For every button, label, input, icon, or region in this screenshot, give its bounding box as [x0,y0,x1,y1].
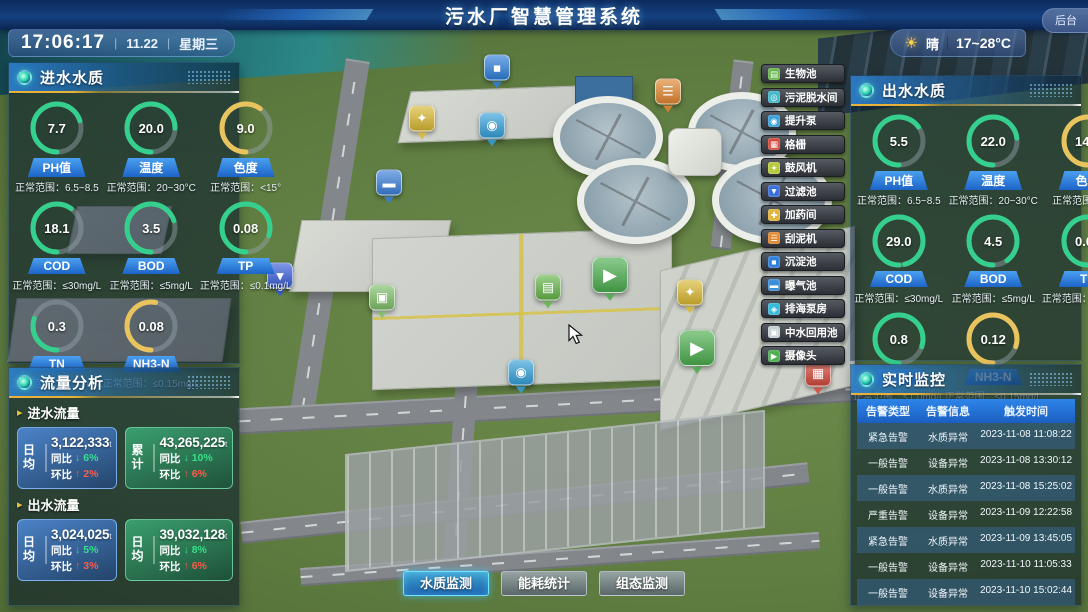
facility-type-icon: ☰ [768,232,780,244]
facility-label: 排海泵房 [785,301,827,316]
alarm-type: 紧急告警 [859,533,917,548]
up-arrow-icon: ↑ [75,560,80,572]
weekday-label: 星期三 [179,34,218,53]
alarm-row[interactable]: 严重告警 设备异常 2023-11-09 12:22:58 [857,501,1075,527]
facility-marker-icon: ☰ [655,79,681,105]
gauge-label: PH值 [870,171,928,190]
alarm-row[interactable]: 一般告警 设备异常 2023-11-10 11:05:33 [857,553,1075,579]
gauge-label: BOD [122,258,180,274]
facility-label: 生物池 [785,66,817,81]
facility-marker[interactable]: ◉ [508,360,534,399]
weather-label: 晴 [926,34,939,53]
facility-type-icon: ◈ [768,303,780,315]
alarm-type: 紧急告警 [859,429,917,444]
yoy-percent: 10% [192,452,213,464]
gauge-label: 色度 [1059,171,1088,190]
alarm-time: 2023-11-08 15:25:02 [979,481,1073,496]
header-wing-right [715,9,872,20]
marker-pointer-icon [487,140,497,152]
column-alarm-type: 告警类型 [859,403,917,419]
facility-type-icon: ◎ [768,91,780,103]
facility-type-icon: ▶ [768,350,780,362]
mom-percent: 2% [83,468,98,480]
alarm-time: 2023-11-10 11:05:33 [979,559,1073,574]
bottom-nav-button[interactable]: 能耗统计 [501,571,587,596]
gauge-label: COD [28,258,86,274]
gauge-ring: 22.0 [964,112,1022,170]
water-quality-gauge: 5.5 PH值 正常范围：6.5~8.5 [853,112,945,207]
facility-marker[interactable]: ▤ [535,275,561,314]
gauge-value: 9.0 [217,99,275,157]
gauge-label: 温度 [964,171,1022,190]
panel-header-decoration [187,70,231,84]
down-arrow-icon: ↓ [75,452,80,464]
panel-header-icon [17,375,32,390]
inlet-quality-panel: 进水水质 7.7 PH值 正常范围：6.5~8.5 [8,62,240,364]
facility-label: 曝气池 [785,278,817,293]
gauge-label: TP [217,258,275,274]
gauge-normal-range: 正常范围：≤30mg/L [853,290,945,305]
bottom-nav-button[interactable]: 水质监测 [403,571,489,596]
outlet-flow-section-label: ▸ 出水流量 [17,495,231,514]
gauge-value: 7.7 [28,99,86,157]
alarm-time: 2023-11-08 13:30:12 [979,455,1073,470]
panel-header-decoration [1029,83,1073,97]
water-quality-gauge: 0.08 TP 正常范围：≤0.1mg/L [200,199,292,292]
facility-marker[interactable]: ✦ [409,106,435,145]
page-title: 污水厂智慧管理系统 [445,2,643,29]
panel-header-icon [17,70,32,85]
water-quality-gauge: 14.0 色度 正常范围：<15° [1042,112,1088,207]
flow-stat-card: 日均 3,024,025t 同比↓5% 环比↑3% [17,519,117,581]
yoy-percent: 6% [83,452,98,464]
gauge-normal-range: 正常范围：≤5mg/L [103,277,200,292]
flow-value: 43,265,225t [159,435,227,450]
water-quality-gauge: 20.0 温度 正常范围：20~30°C [103,99,200,194]
alarm-row[interactable]: 一般告警 设备异常 2023-11-08 13:30:12 [857,449,1075,475]
facility-marker-icon: ◉ [508,360,534,386]
facility-marker-icon: ✦ [677,280,703,306]
gauge-normal-range: 正常范围：6.5~8.5 [11,179,103,194]
gauge-value: 29.0 [870,212,928,270]
marker-pointer-icon [813,388,823,400]
marker-pointer-icon [605,294,615,306]
yoy-percent: 8% [192,544,207,556]
water-quality-gauge: 7.7 PH值 正常范围：6.5~8.5 [11,99,103,194]
facility-legend-item[interactable]: ■ 沉淀池 [761,252,845,271]
mom-percent: 6% [192,468,207,480]
yoy-percent: 5% [83,544,98,556]
gauge-ring: 20.0 [122,99,180,157]
facility-label: 摄像头 [785,348,817,363]
alarm-info: 水质异常 [917,533,979,548]
facility-legend-item[interactable]: ▼ 过滤池 [761,182,845,201]
marker-pointer-icon [692,367,702,379]
alarm-time: 2023-11-09 12:22:58 [979,507,1073,522]
marker-pointer-icon [384,197,394,209]
app-header: 污水厂智慧管理系统 [0,0,1088,30]
gauge-ring: 0.07 [1059,212,1088,270]
facility-marker[interactable]: ▶ [592,257,628,306]
facility-marker[interactable]: ■ [484,55,510,94]
inlet-gauge-grid: 7.7 PH值 正常范围：6.5~8.5 20.0 温度 正常范围：20~30°… [9,91,239,390]
facility-label: 提升泵 [785,113,817,128]
gauge-label: 色度 [217,158,275,177]
facility-legend-item[interactable]: ▦ 格栅 [761,135,845,154]
flow-body: ▸ 进水流量 日均 3,122,333t 同比↓6% 环比↑2% 累计 4 [9,396,239,591]
flow-value: 39,032,128t [159,527,227,542]
gauge-value: 18.1 [28,199,86,257]
mom-percent: 6% [192,560,207,572]
gauge-value: 3.5 [122,199,180,257]
gauge-value: 0.07 [1059,212,1088,270]
gauge-normal-range: 正常范围：≤30mg/L [11,277,103,292]
down-arrow-icon: ↓ [183,452,188,464]
alarm-row[interactable]: 紧急告警 水质异常 2023-11-09 13:45:05 [857,527,1075,553]
facility-marker-icon: ▶ [592,257,628,293]
header-wing-left [217,9,374,20]
gauge-normal-range: 正常范围：≤0.1mg/L [200,277,292,292]
gauge-label: PH值 [28,158,86,177]
alarm-time: 2023-11-10 15:02:44 [979,585,1073,600]
gauge-value: 5.5 [870,112,928,170]
facility-legend-item[interactable]: ✚ 加药间 [761,205,845,224]
gauge-value: 4.5 [964,212,1022,270]
facility-marker-icon: ▣ [369,285,395,311]
gauge-normal-range: 正常范围：6.5~8.5 [853,192,945,207]
section-arrow-icon: ▸ [17,498,23,511]
mouse-cursor [568,324,583,345]
flow-value: 3,122,333t [51,435,111,450]
mom-percent: 3% [83,560,98,572]
clock-time: 17:06:17 [21,32,105,54]
facility-label: 过滤池 [785,184,817,199]
outlet-quality-panel: 出水水质 5.5 PH值 正常范围：6.5~8.5 [850,75,1082,361]
facility-label: 刮泥机 [785,231,817,246]
gauge-value: 14.0 [1059,112,1088,170]
facility-type-icon: ■ [768,256,780,268]
facility-marker[interactable]: ▬ [376,170,402,209]
flow-card-tag: 日均 [131,536,155,564]
facility-legend: ▤ 生物池 ◎ 污泥脱水间 ◉ 提升泵 ▦ 格栅 ✦ 鼓风机 ▼ 过滤池 ✚ 加… [761,64,845,365]
panel-title: 进水水质 [40,67,104,88]
datetime-display: 17:06:17 | 11.22 | 星期三 [8,29,235,57]
gauge-value: 0.3 [28,297,86,355]
water-quality-gauge: 0.07 TP 正常范围：≤0.1mg/L [1042,212,1088,305]
panel-header-icon [859,83,874,98]
gauge-ring: 0.08 [217,199,275,257]
alarm-info: 水质异常 [917,481,979,496]
facility-legend-item[interactable]: ▶ 摄像头 [761,346,845,365]
marker-pointer-icon [417,133,427,145]
panel-header: 实时监控 [851,365,1081,393]
alarm-table: 告警类型 告警信息 触发时间 紧急告警 水质异常 2023-11-08 11:0… [857,399,1075,605]
flow-card-tag: 累计 [131,444,155,472]
marker-pointer-icon [663,106,673,118]
facility-legend-item[interactable]: ✦ 鼓风机 [761,158,845,177]
water-quality-gauge: 18.1 COD 正常范围：≤30mg/L [11,199,103,292]
gauge-label: TP [1059,271,1088,287]
marker-pointer-icon [543,302,553,314]
gauge-ring: 14.0 [1059,112,1088,170]
gauge-ring: 7.7 [28,99,86,157]
facility-marker-icon: ▤ [535,275,561,301]
sun-icon: ☀ [905,34,918,52]
facility-legend-item[interactable]: ◎ 污泥脱水间 [761,88,845,107]
divider [947,36,948,50]
bottom-nav: 水质监测 能耗统计 组态监测 [403,571,685,596]
facility-marker-icon: ▬ [376,170,402,196]
flow-stat-card: 累计 43,265,225t 同比↓10% 环比↑6% [125,427,233,489]
gauge-ring: 18.1 [28,199,86,257]
panel-header: 出水水质 [851,76,1081,104]
facility-type-icon: ▣ [768,326,780,338]
facility-label: 加药间 [785,207,817,222]
alarm-time: 2023-11-09 13:45:05 [979,533,1073,548]
panel-header-decoration [1029,372,1073,386]
flow-stat-card: 日均 39,032,128t 同比↓8% 环比↑6% [125,519,233,581]
gauge-normal-range: 正常范围：≤5mg/L [945,290,1042,305]
up-arrow-icon: ↑ [183,468,188,480]
facility-label: 污泥脱水间 [785,90,838,105]
facility-label: 鼓风机 [785,160,817,175]
alarm-row[interactable]: 一般告警 设备异常 2023-11-10 15:02:44 [857,579,1075,605]
facility-marker[interactable]: ▦ [805,361,831,400]
facility-marker-icon: ▶ [679,330,715,366]
facility-type-icon: ▬ [768,279,780,291]
gauge-label: 温度 [122,158,180,177]
up-arrow-icon: ↑ [183,560,188,572]
gauge-label: COD [870,271,928,287]
alarm-info: 水质异常 [917,429,979,444]
marker-pointer-icon [492,82,502,94]
outlet-gauge-grid: 5.5 PH值 正常范围：6.5~8.5 22.0 温度 正常范围：20~30°… [851,104,1081,403]
facility-type-icon: ▼ [768,185,780,197]
facility-marker[interactable]: ▶ [679,330,715,379]
realtime-monitor-panel: 实时监控 告警类型 告警信息 触发时间 紧急告警 水质异常 2023-11-08… [850,364,1082,606]
alarm-info: 设备异常 [917,507,979,522]
alarm-row[interactable]: 一般告警 水质异常 2023-11-08 15:25:02 [857,475,1075,501]
alarm-type: 一般告警 [859,559,917,574]
divider: | [167,36,170,50]
flow-card-tag: 日均 [23,536,47,564]
facility-marker[interactable]: ☰ [655,79,681,118]
gauge-ring: 5.5 [870,112,928,170]
alarm-type: 一般告警 [859,585,917,600]
facility-legend-item[interactable]: ◈ 排海泵房 [761,299,845,318]
water-quality-gauge: 9.0 色度 正常范围：<15° [200,99,292,194]
gauge-value: 0.08 [122,297,180,355]
gauge-value: 0.8 [870,310,928,368]
section-arrow-icon: ▸ [17,406,23,419]
gauge-value: 0.08 [217,199,275,257]
down-arrow-icon: ↓ [75,544,80,556]
facility-label: 中水回用池 [785,325,838,340]
panel-title: 实时监控 [882,369,946,390]
gauge-normal-range: 正常范围：<15° [1042,192,1088,207]
alarm-time: 2023-11-08 11:08:22 [979,429,1073,444]
panel-header: 进水水质 [9,63,239,91]
gauge-ring: 0.3 [28,297,86,355]
gauge-value: 0.12 [964,310,1022,368]
panel-title: 出水水质 [882,80,946,101]
alarm-type: 严重告警 [859,507,917,522]
alarm-row[interactable]: 紧急告警 水质异常 2023-11-08 11:08:22 [857,423,1075,449]
gauge-normal-range: 正常范围：20~30°C [103,179,200,194]
column-trigger-time: 触发时间 [979,403,1073,419]
divider: | [114,36,117,50]
facility-label: 沉淀池 [785,254,817,269]
up-arrow-icon: ↑ [75,468,80,480]
flow-analysis-panel: 流量分析 ▸ 进水流量 日均 3,122,333t 同比↓6% 环比↑2% [8,367,240,606]
facility-legend-item[interactable]: ▣ 中水回用池 [761,323,845,342]
gauge-ring: 4.5 [964,212,1022,270]
gauge-ring: 0.12 [964,310,1022,368]
facility-marker-icon: ◉ [479,113,505,139]
gauge-value: 20.0 [122,99,180,157]
backstage-button[interactable]: 后台 [1042,8,1088,33]
gauge-ring: 29.0 [870,212,928,270]
gauge-label: BOD [964,271,1022,287]
facility-legend-item[interactable]: ◉ 提升泵 [761,111,845,130]
column-alarm-info: 告警信息 [917,403,979,419]
down-arrow-icon: ↓ [183,544,188,556]
inlet-flow-section-label: ▸ 进水流量 [17,403,231,422]
panel-title: 流量分析 [40,372,104,393]
flow-stat-card: 日均 3,122,333t 同比↓6% 环比↑2% [17,427,117,489]
water-quality-gauge: 3.5 BOD 正常范围：≤5mg/L [103,199,200,292]
facility-type-icon: ✚ [768,209,780,221]
alarm-info: 设备异常 [917,455,979,470]
water-quality-gauge: 22.0 温度 正常范围：20~30°C [945,112,1042,207]
temperature-range: 17~28°C [956,35,1011,51]
bottom-nav-button[interactable]: 组态监测 [599,571,685,596]
panel-header: 流量分析 [9,368,239,396]
facility-marker-icon: ■ [484,55,510,81]
facility-label: 格栅 [785,137,806,152]
facility-legend-item[interactable]: ▬ 曝气池 [761,276,845,295]
gauge-normal-range: 正常范围：≤0.1mg/L [1042,290,1088,305]
flow-card-tag: 日均 [23,444,47,472]
alarm-info: 设备异常 [917,559,979,574]
panel-header-icon [859,372,874,387]
alarm-rows: 紧急告警 水质异常 2023-11-08 11:08:22 一般告警 设备异常 … [857,423,1075,605]
facility-type-icon: ▦ [768,138,780,150]
facility-type-icon: ◉ [768,115,780,127]
water-quality-gauge: 29.0 COD 正常范围：≤30mg/L [853,212,945,305]
marker-pointer-icon [377,312,387,324]
facility-legend-item[interactable]: ☰ 刮泥机 [761,229,845,248]
facility-type-icon: ▤ [768,68,780,80]
gauge-normal-range: 正常范围：<15° [200,179,292,194]
facility-marker[interactable]: ✦ [677,280,703,319]
marker-pointer-icon [516,387,526,399]
gauge-ring: 3.5 [122,199,180,257]
outlet-flow-cards: 日均 3,024,025t 同比↓5% 环比↑3% 日均 39,032,128t… [17,519,231,581]
alarm-info: 设备异常 [917,585,979,600]
weather-display: ☀ 晴 17~28°C [890,29,1027,57]
facility-type-icon: ✦ [768,162,780,174]
gauge-ring: 9.0 [217,99,275,157]
facility-marker-icon: ✦ [409,106,435,132]
date-label: 11.22 [126,36,158,51]
alarm-type: 一般告警 [859,455,917,470]
gauge-ring: 0.8 [870,310,928,368]
water-quality-gauge: 4.5 BOD 正常范围：≤5mg/L [945,212,1042,305]
marker-pointer-icon [685,307,695,319]
facility-marker[interactable]: ◉ [479,113,505,152]
gauge-ring: 0.08 [122,297,180,355]
gauge-normal-range: 正常范围：20~30°C [945,192,1042,207]
inlet-flow-cards: 日均 3,122,333t 同比↓6% 环比↑2% 累计 43,265,225t… [17,427,231,489]
flow-value: 3,024,025t [51,527,111,542]
alarm-table-header: 告警类型 告警信息 触发时间 [857,399,1075,423]
alarm-type: 一般告警 [859,481,917,496]
panel-header-decoration [187,375,231,389]
facility-marker[interactable]: ▣ [369,285,395,324]
facility-legend-item[interactable]: ▤ 生物池 [761,64,845,83]
gauge-value: 22.0 [964,112,1022,170]
